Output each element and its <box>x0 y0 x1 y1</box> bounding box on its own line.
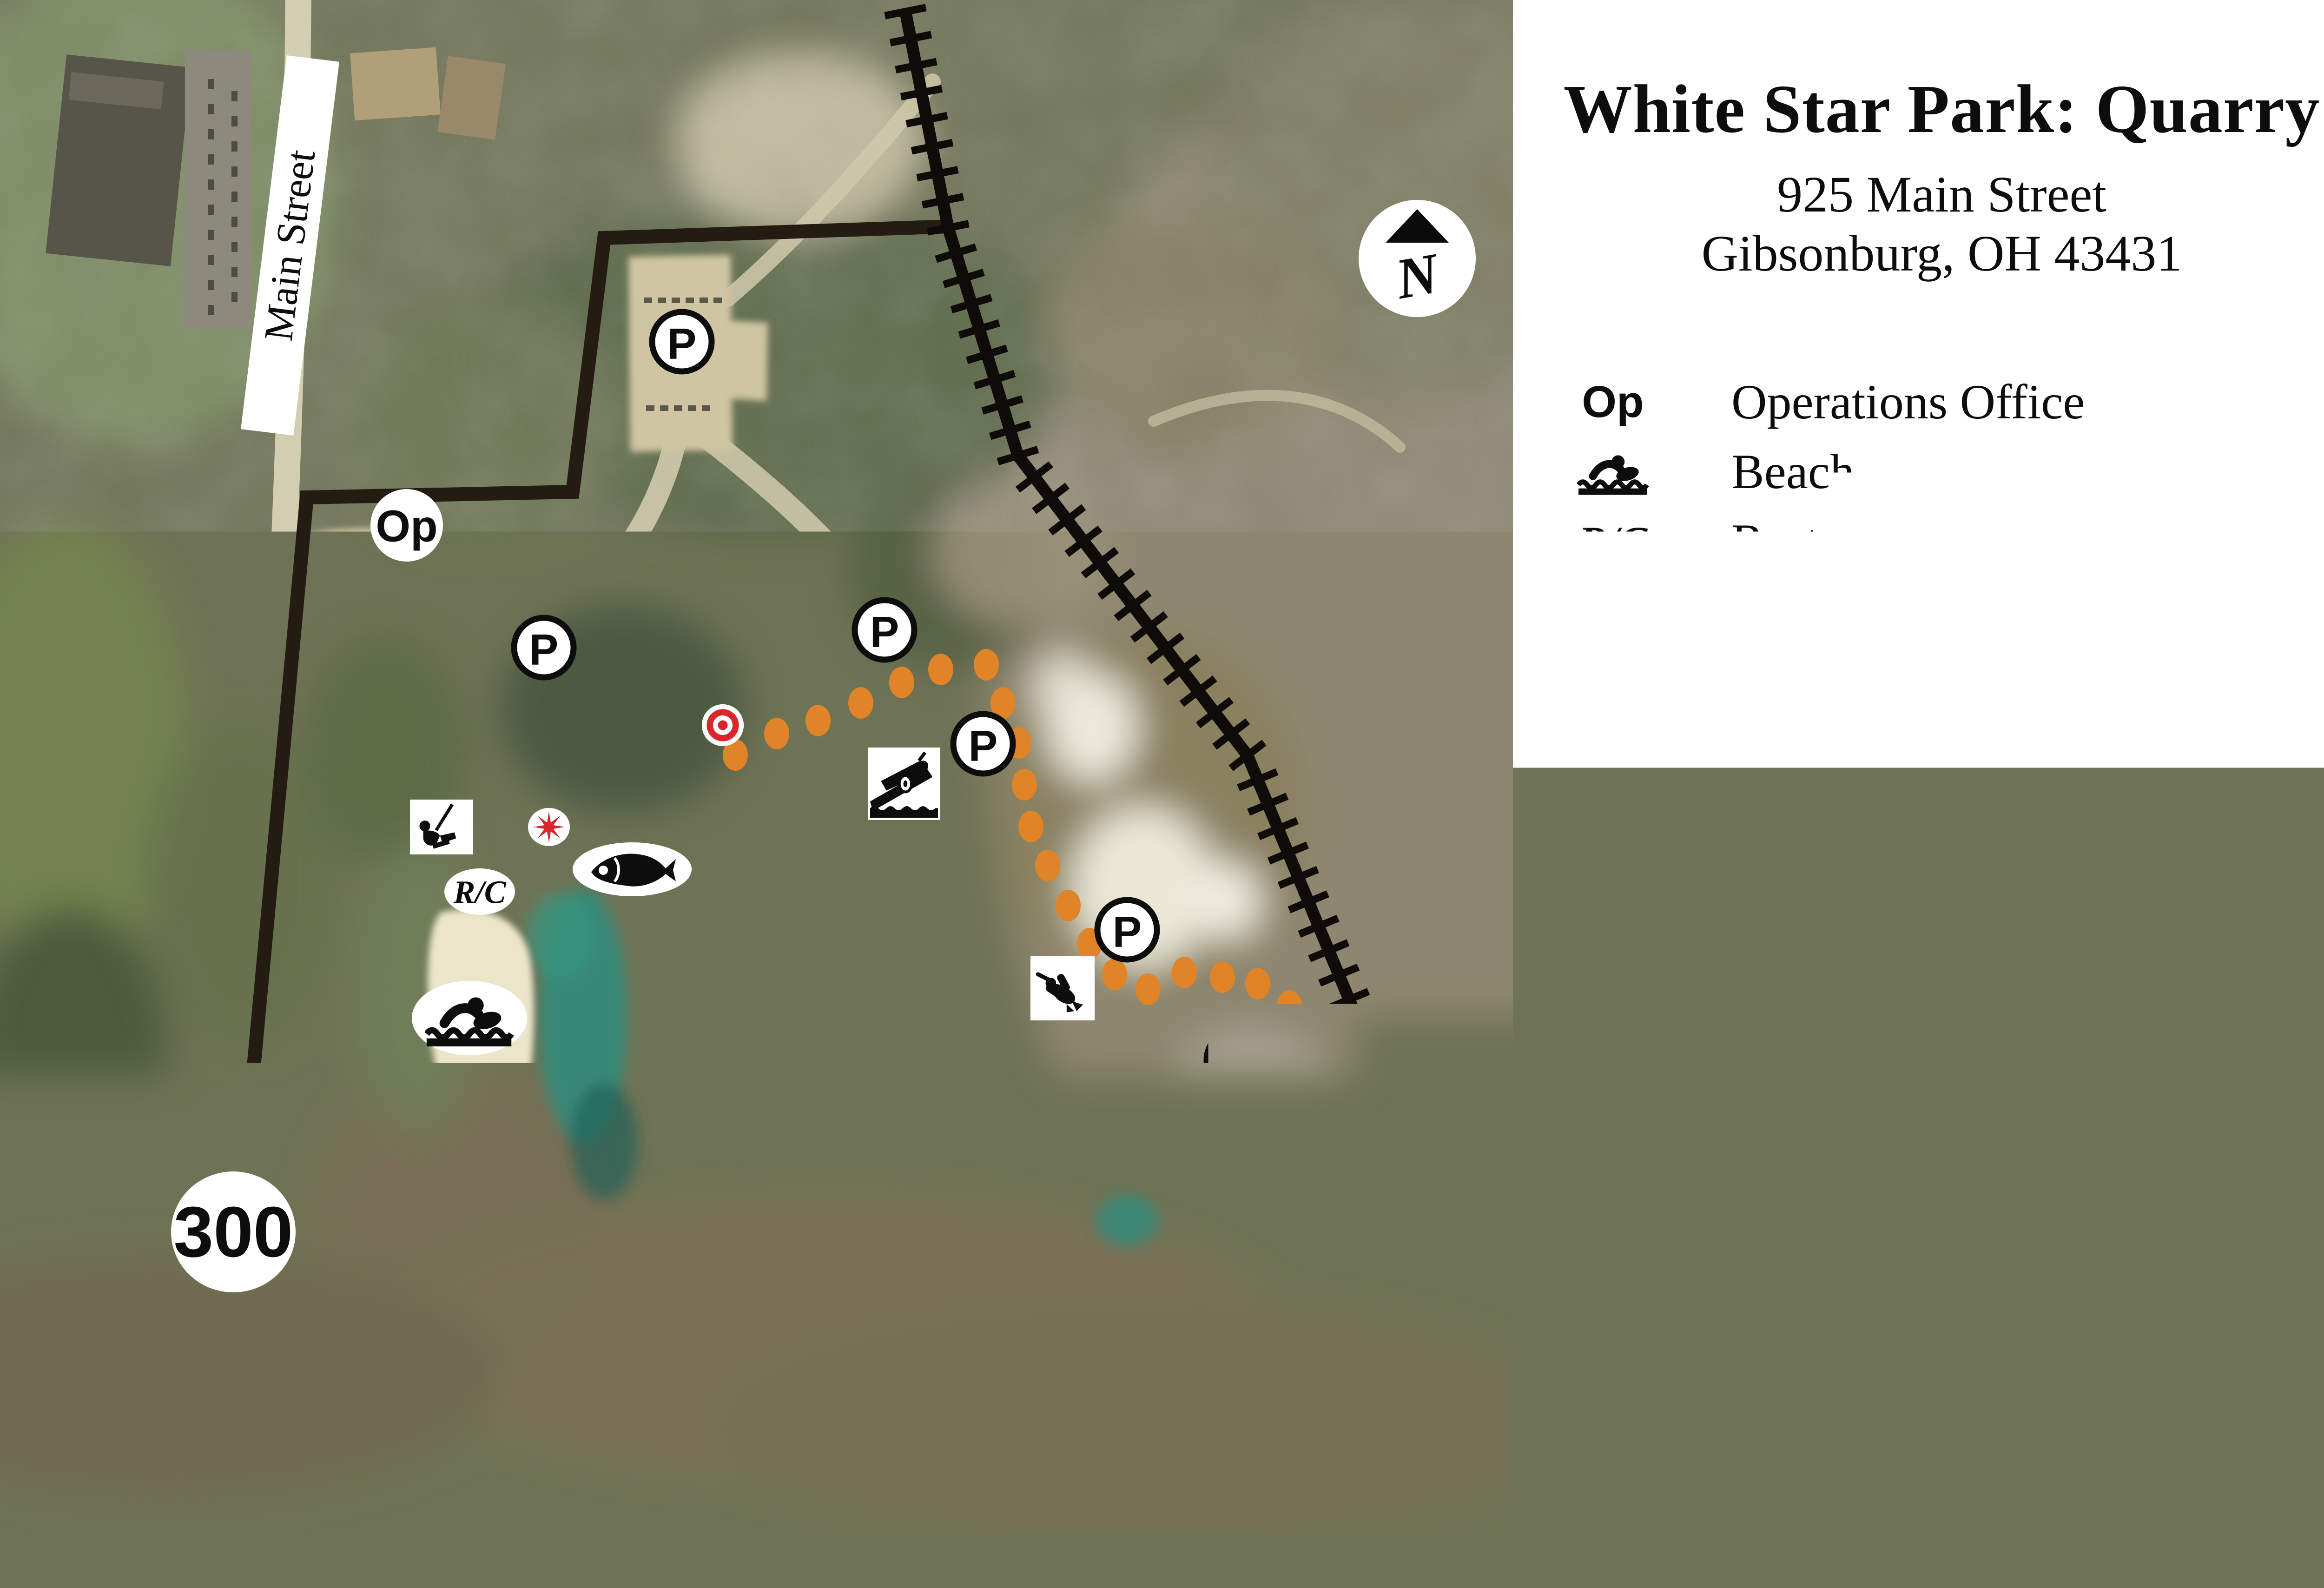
trail-dot <box>512 1170 537 1201</box>
legend-label: Parking <box>1731 1141 1885 1198</box>
legend-row-oak-shelter: Oak Shelter <box>1513 786 2324 855</box>
trail-dot <box>1136 973 1161 1005</box>
oak-shelter-icon <box>1589 796 1637 845</box>
oak-shelter-marker <box>702 704 744 746</box>
building <box>185 50 251 329</box>
building <box>437 56 506 140</box>
legend-row-scuba-shop: Scuba Shop <box>1513 576 2324 646</box>
legend-row-restrooms-concession: R/C Restrooms/Concession <box>1513 507 2324 576</box>
legend-label: Oak Shelter <box>1731 792 1965 849</box>
logo-website-url: www.lovemyparks.com <box>1779 1554 2105 1588</box>
trail-dot <box>788 1246 813 1277</box>
trail-dot <box>764 718 789 749</box>
road <box>0 1251 133 1256</box>
restrooms-concession-icon: R/C <box>1578 517 1647 566</box>
building <box>69 1291 127 1336</box>
trail-dot <box>695 1247 720 1278</box>
legend-row-sycamore-shelter: Sycamore Shelter <box>1513 716 2324 786</box>
trail-dot <box>881 1244 906 1276</box>
legend-row-simcox-shelter: Simcox Shelter <box>1513 646 2324 716</box>
parking-marker: P <box>514 618 574 677</box>
playground-marker <box>410 800 473 854</box>
legend-row-playground: Playground <box>1513 855 2324 925</box>
trail-dot <box>1254 1172 1280 1204</box>
address-line-2: Gibsonburg, OH 43431 <box>1513 224 2324 283</box>
scuba-icon <box>1584 582 1642 641</box>
scuba-shop-marker <box>1030 956 1095 1020</box>
map-legend: Op Operations Office Beach R/C Restrooms… <box>1513 367 2324 1204</box>
trail-dot <box>648 1247 673 1278</box>
trail-dot <box>609 1246 634 1277</box>
legend-row-operations-office: Op Operations Office <box>1513 367 2324 437</box>
svg-text:P: P <box>1113 907 1142 956</box>
parking-marker: P <box>1097 900 1157 959</box>
parking-icon: P <box>1587 1143 1639 1195</box>
trail-dot <box>1292 1131 1317 1162</box>
fishing-platform-marker <box>585 1174 716 1234</box>
trail-dot <box>1012 769 1037 801</box>
building <box>350 47 441 121</box>
legend-label: Loop Trail (.25 miles) <box>1731 1071 2166 1128</box>
trail-dot <box>1297 1029 1322 1061</box>
trail-dot <box>447 1109 472 1141</box>
trail-dot <box>1263 1136 1288 1168</box>
svg-text:300: 300 <box>174 1192 293 1272</box>
trail-dot <box>1018 811 1043 842</box>
trail-dot <box>1172 957 1197 988</box>
trail-dot <box>1056 890 1081 921</box>
address-line-1: 925 Main Street <box>1513 165 2324 224</box>
simcox-shelter-marker <box>323 1110 358 1151</box>
logo-rule <box>1812 1406 2072 1409</box>
building <box>19 1180 71 1218</box>
north-arrow: N <box>1357 198 1478 319</box>
legend-label: Beach <box>1731 443 1855 500</box>
beach-icon <box>1577 449 1649 495</box>
trail-dot <box>1035 850 1060 881</box>
trail-dot <box>805 705 831 736</box>
legend-row-beach: Beach <box>1513 437 2324 507</box>
svg-text:P: P <box>870 608 899 656</box>
svg-text:P: P <box>1222 1038 1251 1086</box>
legend-label: Sycamore Shelter <box>1731 722 2080 779</box>
trail-dot <box>1210 961 1235 993</box>
parking-marker: P <box>953 714 1013 774</box>
legend-row-parking: P Parking <box>1513 1134 2324 1204</box>
road <box>0 1373 230 1379</box>
svg-text:R/C: R/C <box>453 875 507 911</box>
trail-dot <box>848 687 873 719</box>
parking-marker: P <box>855 600 914 660</box>
page-title: White Star Park: Quarry <box>1513 70 2324 149</box>
legend-label: Simcox Shelter <box>1731 653 2034 709</box>
map-canvas: Main Street30065OpPPPPPPR/C <box>0 0 1513 1534</box>
beach-marker <box>412 981 527 1055</box>
trail-dot <box>889 667 914 698</box>
logo-line-county: COUNTY <box>1779 1513 2105 1542</box>
logo-line-sandusky: SANDUSKY <box>1779 1373 2105 1402</box>
restrooms-concession-marker: R/C <box>444 868 515 915</box>
svg-text:65: 65 <box>1222 1264 1286 1328</box>
trail-dot <box>1102 959 1127 990</box>
trail-dot <box>1112 1227 1137 1259</box>
simcox-shelter-icon <box>1586 655 1640 708</box>
building <box>36 910 76 954</box>
svg-text:P: P <box>667 319 697 368</box>
trail-dot <box>571 1237 596 1268</box>
operations-office-marker: Op <box>370 489 443 562</box>
building <box>28 790 72 825</box>
legend-label: Boat Launch <box>1731 1001 1985 1058</box>
svg-text:P: P <box>529 625 559 674</box>
logo-tree-bird-graphic <box>1833 1206 2051 1367</box>
parking-marker: P <box>652 312 712 371</box>
fishing-platform-icon <box>1576 943 1650 977</box>
trail-dot <box>543 1205 568 1237</box>
playground-icon <box>1585 866 1641 915</box>
svg-text:P: P <box>1603 1154 1623 1188</box>
trail-dot <box>927 1242 952 1274</box>
trail-dot <box>1310 1070 1335 1102</box>
legend-label: Operations Office <box>1731 374 2085 430</box>
trail-dot <box>479 1136 504 1168</box>
trail-dot <box>1277 990 1302 1022</box>
legend-row-fishing-platform: Fishing Platform <box>1513 925 2324 995</box>
loop-trail-icon <box>1536 1085 1690 1113</box>
park-district-logo: SANDUSKY PARK DISTRICT COUNTY www.lovemy… <box>1513 1206 2324 1588</box>
legend-row-boat-launch: Boat Launch <box>1513 995 2324 1065</box>
legend-label: Playground <box>1731 862 1959 919</box>
fishing-platform-marker <box>573 842 692 896</box>
trail-dot <box>1067 1233 1092 1264</box>
trail-dot <box>1219 1193 1244 1224</box>
route-65-label: 65 <box>1215 1260 1293 1332</box>
route-300-label: 300 <box>171 1171 296 1292</box>
boat-launch-icon <box>1583 999 1643 1060</box>
trail-dot <box>1245 968 1270 999</box>
trail-dot <box>1178 1200 1203 1232</box>
logo-line-park-district: PARK DISTRICT <box>1779 1412 2105 1506</box>
sycamore-shelter-icon <box>1584 722 1642 780</box>
svg-text:P: P <box>969 721 998 770</box>
legend-label: Restrooms/Concession <box>1731 513 2183 570</box>
trail-dot <box>741 1247 766 1278</box>
trail-dot <box>834 1245 859 1277</box>
trail-dot <box>974 1240 999 1272</box>
boat-launch-marker <box>868 748 940 820</box>
info-panel: White Star Park: Quarry 925 Main Street … <box>1513 0 2324 1534</box>
trail-dot <box>1152 1219 1177 1251</box>
aerial-map: Main Street30065OpPPPPPPR/C <box>0 0 1513 1534</box>
trail-dot <box>1312 1111 1337 1143</box>
sycamore-shelter-marker <box>528 808 570 846</box>
trail-dot <box>415 1081 440 1113</box>
svg-text:Op: Op <box>376 502 437 551</box>
lake-highlight <box>718 853 918 992</box>
legend-row-loop-trail: Loop Trail (.25 miles) <box>1513 1065 2324 1134</box>
trail-dot <box>974 649 999 681</box>
operations-office-icon: Op <box>1582 377 1644 428</box>
legend-label: Fishing Platform <box>1731 932 2064 988</box>
parking-marker: P <box>1207 1030 1266 1090</box>
road <box>221 1373 230 1534</box>
trail-dot <box>928 654 953 685</box>
trail-dot <box>1020 1237 1045 1269</box>
legend-label: Scuba Shop <box>1731 583 1966 640</box>
